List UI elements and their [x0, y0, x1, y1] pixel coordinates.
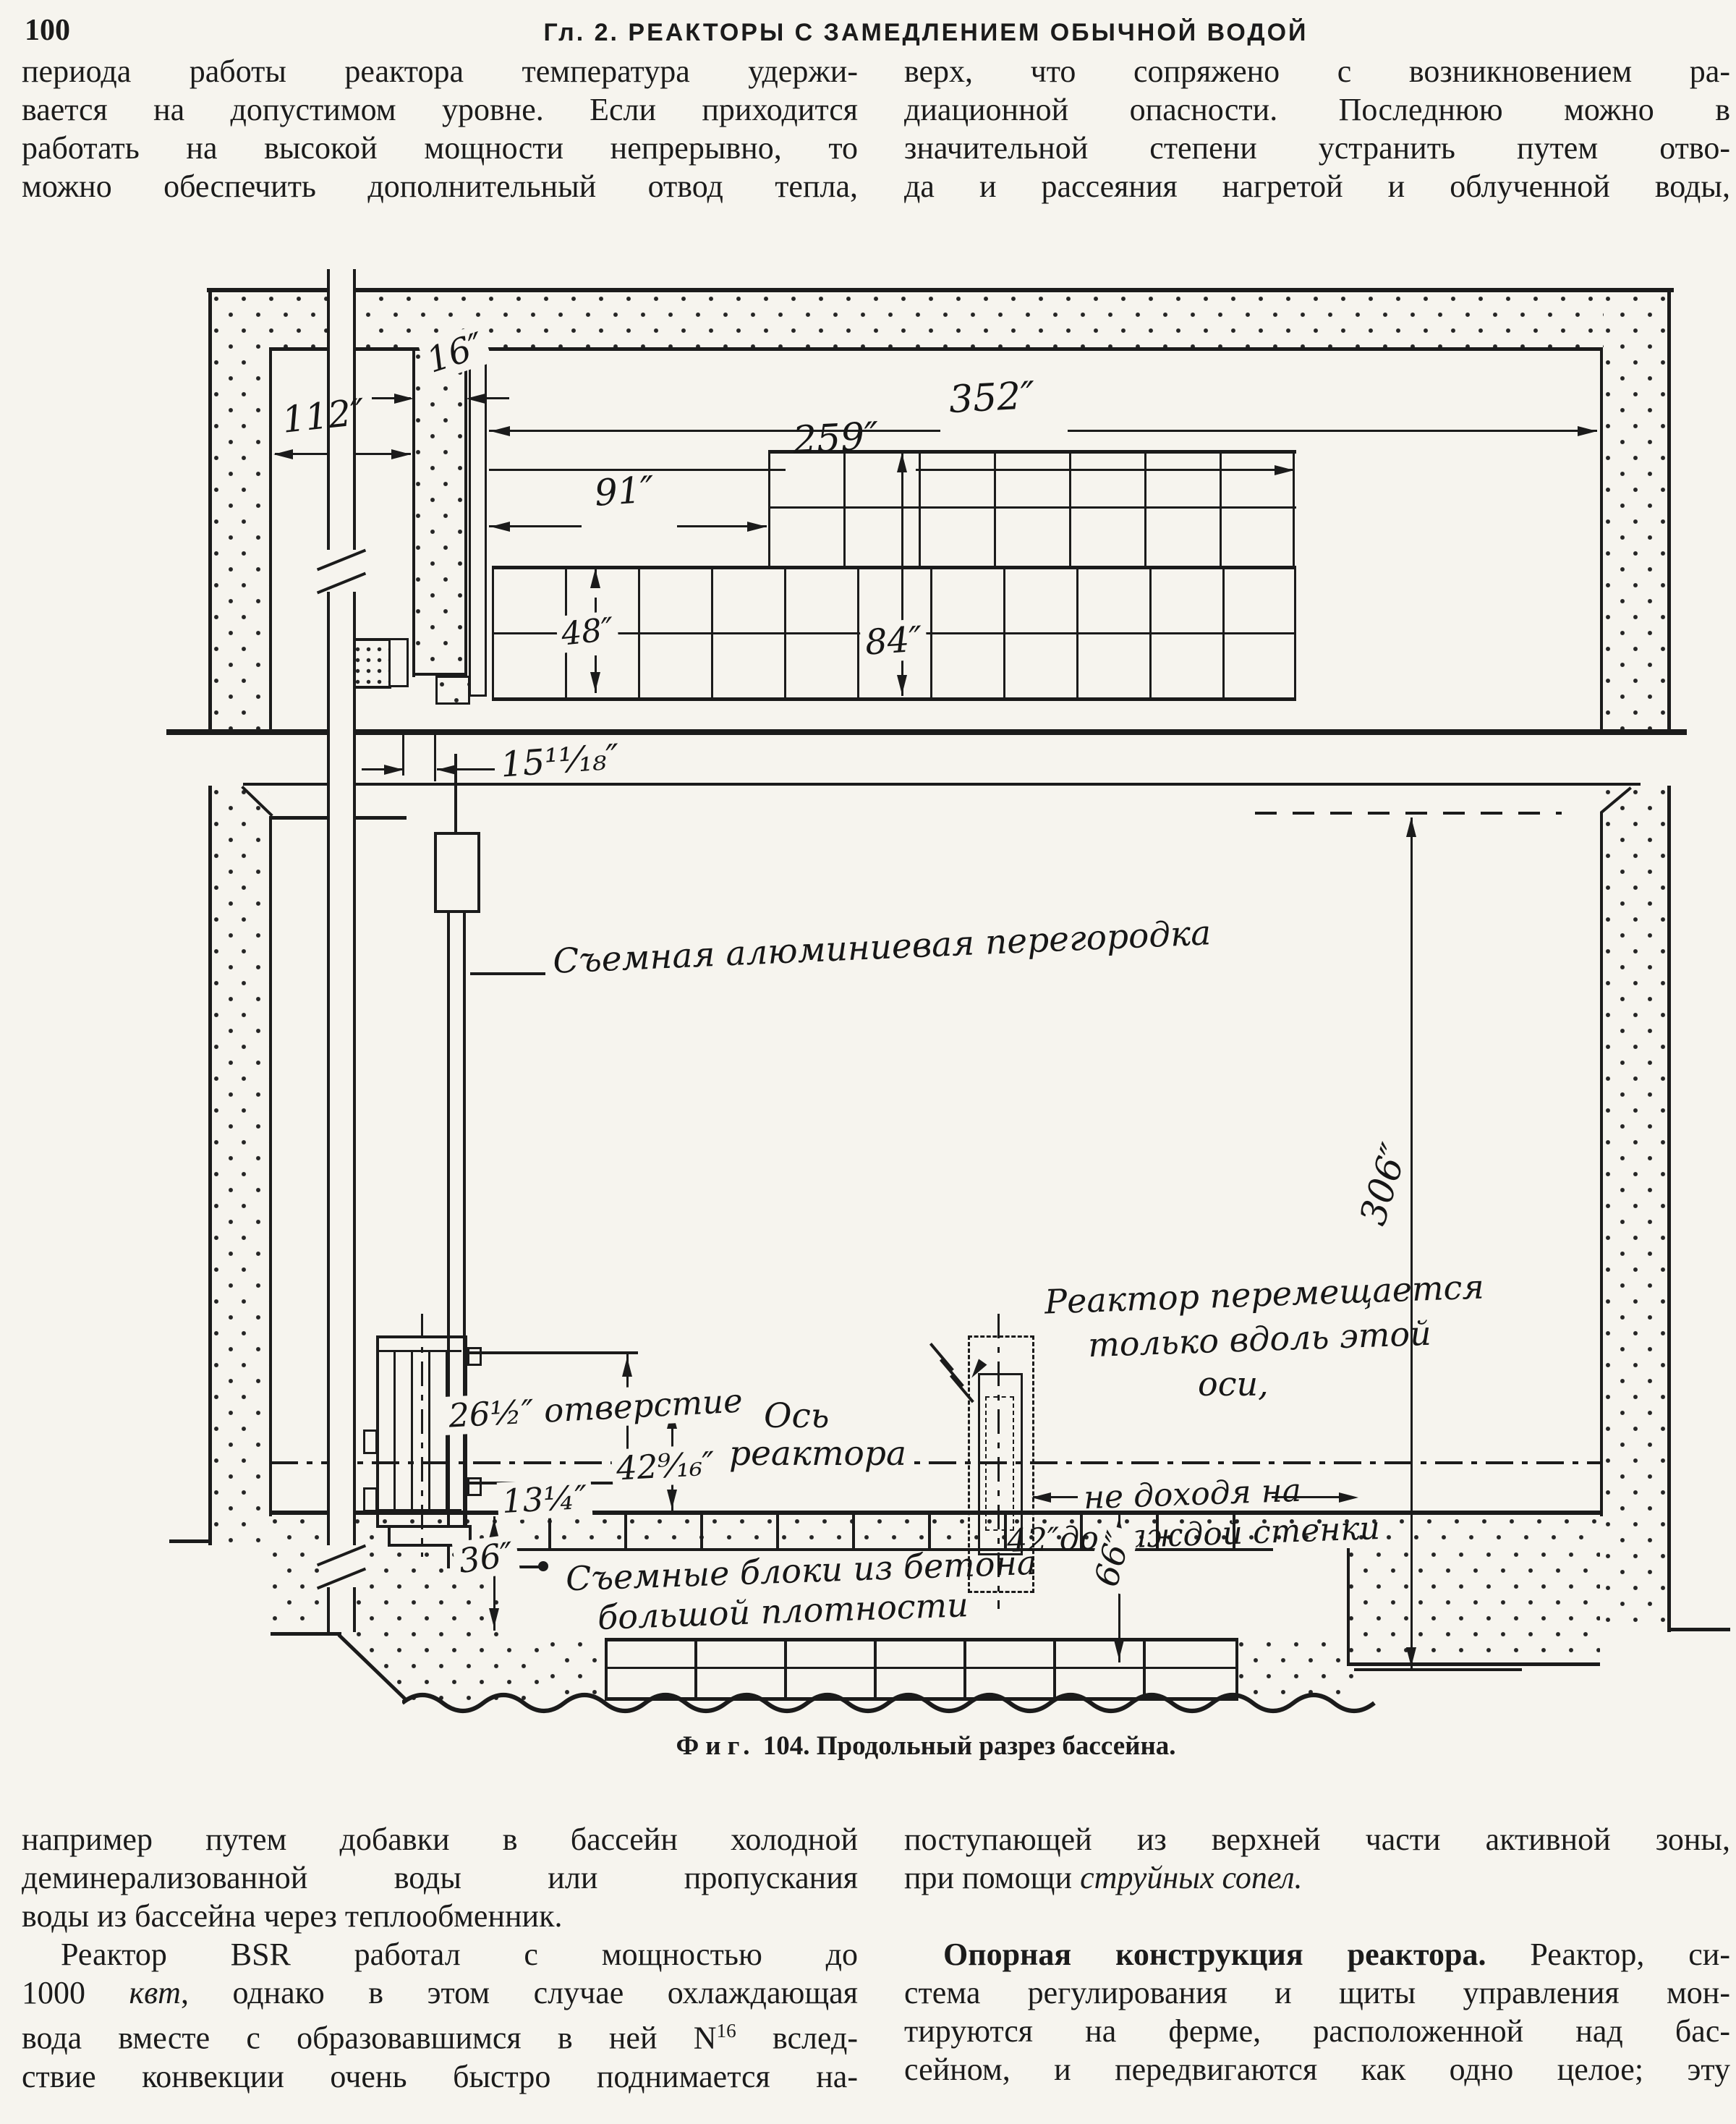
figure-stroke — [1354, 1668, 1522, 1671]
figure-stroke — [466, 394, 485, 404]
figure-stroke — [490, 522, 510, 532]
dim-112-label: 112″ — [280, 391, 367, 441]
figure-stroke — [1347, 1662, 1600, 1666]
dim-84-label: 84″ — [859, 619, 928, 663]
axis-label-line2: реактора — [725, 1434, 911, 1474]
reactor-move-label-line3: оси, — [1198, 1364, 1269, 1403]
figure-caption: Фиг. 104. Продольный разрез бассейна. — [506, 1730, 1345, 1762]
figure-stroke — [212, 786, 269, 1545]
text-segment: 1000 — [22, 1975, 129, 2010]
text-line: воды из бассейна через теплообменник. — [22, 1897, 858, 1935]
figure-stroke — [394, 394, 414, 404]
figure-stroke — [897, 675, 907, 694]
figure-caption-text: 104. Продольный разрез бассейна. — [756, 1731, 1175, 1761]
text-segment: поступающей из верхней части активной зо… — [904, 1822, 1730, 1857]
text-segment: деминерализованной воды или пропускания — [22, 1860, 858, 1895]
figure-stroke — [1667, 786, 1671, 1632]
figure-stroke — [590, 672, 600, 692]
figure-stroke — [271, 1461, 1600, 1464]
dim-91-label: 91″ — [593, 468, 655, 514]
figure-stroke — [363, 1487, 378, 1512]
figure-stroke — [1604, 786, 1667, 1629]
figure-stroke — [1406, 1647, 1416, 1667]
figure-stroke — [1600, 812, 1603, 1516]
figure-stroke — [421, 1314, 423, 1557]
figure-stroke — [269, 347, 272, 732]
bottom-left-column: например путем добавки в бассейн холодно… — [22, 1820, 858, 2096]
figure-stroke — [467, 1347, 482, 1366]
figure-stroke — [929, 1343, 954, 1371]
text-line: 1000 квт, однако в этом случае охлаждающ… — [22, 1974, 858, 2012]
figure-stroke — [169, 1539, 211, 1543]
dim-42-9-16-label: 42⁹⁄₁₆″ — [611, 1444, 720, 1488]
figure-stroke — [590, 569, 600, 588]
dim-48-label: 48″ — [556, 611, 620, 654]
figure-stroke — [273, 449, 293, 459]
figure-stroke — [1410, 817, 1413, 1668]
figure-stroke — [269, 816, 272, 1516]
figure-stroke — [391, 449, 411, 459]
figure-stroke — [1347, 1548, 1600, 1665]
figure-stroke — [490, 426, 510, 436]
axis-label-line1: Ось — [764, 1396, 829, 1436]
figure-stroke — [363, 1430, 378, 1454]
figure-stroke — [470, 972, 545, 975]
figure-stroke — [897, 453, 907, 472]
text-line: тируются на ферме, расположенной над бас… — [904, 2012, 1730, 2050]
figure-stroke — [414, 350, 466, 676]
figure-stroke — [428, 1350, 430, 1511]
reactor-move-label-line2: только вдоль этой — [1087, 1314, 1431, 1365]
text-segment: Опорная конструкция реактора. — [943, 1937, 1486, 1972]
figure-stroke — [1604, 292, 1667, 729]
figure-stroke — [379, 1350, 461, 1352]
text-line: ствие конвекции очень быстро поднимается… — [22, 2057, 858, 2096]
text-line: сейном, и передвигаются как одно целое; … — [904, 2050, 1730, 2089]
figure-stroke — [207, 288, 1674, 292]
figure-stroke — [469, 694, 487, 697]
figure-stroke — [492, 566, 1296, 569]
figure-stroke — [469, 1351, 638, 1354]
figure-stroke — [243, 783, 1641, 786]
text-segment: при помощи — [904, 1860, 1080, 1895]
text-segment: Реактор BSR работал с мощностью до — [61, 1937, 858, 1972]
text-line: Опорная конструкция реактора. Реактор, с… — [904, 1935, 1730, 1974]
figure-stroke — [1114, 1640, 1124, 1660]
figure-stroke — [388, 638, 409, 687]
figure-stroke — [208, 288, 212, 732]
figure-stroke — [434, 832, 480, 913]
figure-stroke — [1347, 1548, 1350, 1665]
figure-stroke — [411, 1350, 413, 1511]
text-line: поступающей из верхней части активной зо… — [904, 1820, 1730, 1858]
figure-stroke — [1068, 430, 1597, 432]
text-line: вода вместе с образовавшимся в ней N16 в… — [22, 2012, 858, 2057]
figure-stroke — [916, 469, 1293, 471]
text-segment: , однако в этом случае охлаждающая — [181, 1975, 858, 2010]
figure-stroke — [776, 1515, 779, 1548]
figure-stroke — [1255, 812, 1562, 815]
figure-stroke — [467, 1477, 482, 1496]
text-line: Реактор BSR работал с мощностью до — [22, 1935, 858, 1974]
figure-stroke — [271, 1632, 341, 1636]
figure-stroke — [1406, 817, 1416, 837]
dim-352-label: 352″ — [948, 374, 1037, 422]
figure-stroke — [435, 676, 470, 705]
figure-stroke — [208, 786, 212, 1545]
text-segment: например путем добавки в бассейн холодно… — [22, 1822, 858, 1857]
figure-stroke — [940, 1359, 964, 1387]
text-segment: струйных сопел. — [1080, 1860, 1302, 1895]
figure-stroke — [434, 735, 436, 781]
figure-stroke — [747, 522, 767, 532]
text-segment: воды из бассейна через теплообменник. — [22, 1898, 562, 1934]
figure-stroke — [1668, 1628, 1730, 1631]
figure-stroke — [269, 1511, 1600, 1515]
text-line: например путем добавки в бассейн холодно… — [22, 1820, 858, 1858]
figure-stroke — [437, 765, 456, 775]
figure-stroke — [402, 1686, 1386, 1720]
figure-stroke — [1339, 1492, 1358, 1503]
dim-306-label: 306″ — [1352, 1139, 1416, 1230]
figure-stroke — [393, 1350, 396, 1511]
figure-stroke — [852, 1515, 855, 1548]
bottom-right-column: поступающей из верхней части активной зо… — [904, 1820, 1730, 2089]
text-line: при помощи струйных сопел. — [904, 1858, 1730, 1897]
figure-caption-label: Фиг. — [676, 1731, 756, 1761]
text-segment: стема регулирования и щиты управления мо… — [904, 1975, 1730, 2010]
figure-104-drawing: 112″ 16″ 352″ 259″ 91″ 84″ 48″ — [0, 0, 1736, 2124]
figure-stroke — [1031, 1492, 1051, 1503]
figure-stroke — [489, 1608, 499, 1628]
figure-stroke — [212, 292, 269, 729]
book-page: 100 Гл. 2. РЕАКТОРЫ С ЗАМЕДЛЕНИЕМ ОБЫЧНО… — [0, 0, 1736, 2124]
paragraph-gap — [904, 1897, 1730, 1935]
text-line: деминерализованной воды или пропускания — [22, 1858, 858, 1897]
figure-stroke — [1578, 426, 1597, 436]
figure-stroke — [384, 765, 404, 775]
figure-stroke — [548, 1515, 551, 1548]
text-segment: вслед- — [736, 2021, 858, 2056]
figure-stroke — [402, 1695, 1374, 1711]
figure-stroke — [624, 1515, 627, 1548]
partition-label: Съемная алюминиевая перегородка — [552, 913, 1212, 982]
text-segment: квт — [129, 1975, 181, 2010]
figure-stroke — [622, 1357, 632, 1377]
figure-stroke — [768, 506, 1296, 509]
dim-15-11-18-label: 15¹¹⁄₁₈″ — [499, 736, 621, 785]
not-closer-label-line1: не доходя на — [1083, 1472, 1302, 1516]
figure-stroke — [492, 697, 1296, 701]
text-segment: Реактор, си- — [1486, 1937, 1730, 1972]
text-line: стема регулирования и щиты управления мо… — [904, 1974, 1730, 2012]
text-segment: ствие конвекции очень быстро поднимается… — [22, 2059, 858, 2094]
figure-stroke — [1275, 465, 1294, 475]
text-segment: сейном, и передвигаются как одно целое; … — [904, 2052, 1730, 2087]
text-segment: тируются на ферме, расположенной над бас… — [904, 2013, 1730, 2049]
text-segment: 16 — [717, 2020, 736, 2042]
figure-stroke — [166, 729, 1687, 735]
figure-stroke — [1667, 288, 1671, 732]
dim-13-1-4-label: 13¼″ — [497, 1478, 592, 1521]
opening-label: 26½″ отверстие — [443, 1381, 748, 1435]
figure-stroke — [538, 1561, 548, 1571]
figure-stroke — [667, 1490, 677, 1509]
figure-stroke — [928, 1515, 931, 1548]
figure-stroke — [327, 269, 356, 1632]
text-segment: вода вместе с образовавшимся в ней N — [22, 2021, 717, 2056]
dim-259-label: 259″ — [792, 415, 880, 462]
figure-stroke — [700, 1515, 703, 1548]
figure-stroke — [412, 673, 467, 676]
figure-stroke — [1600, 347, 1603, 732]
